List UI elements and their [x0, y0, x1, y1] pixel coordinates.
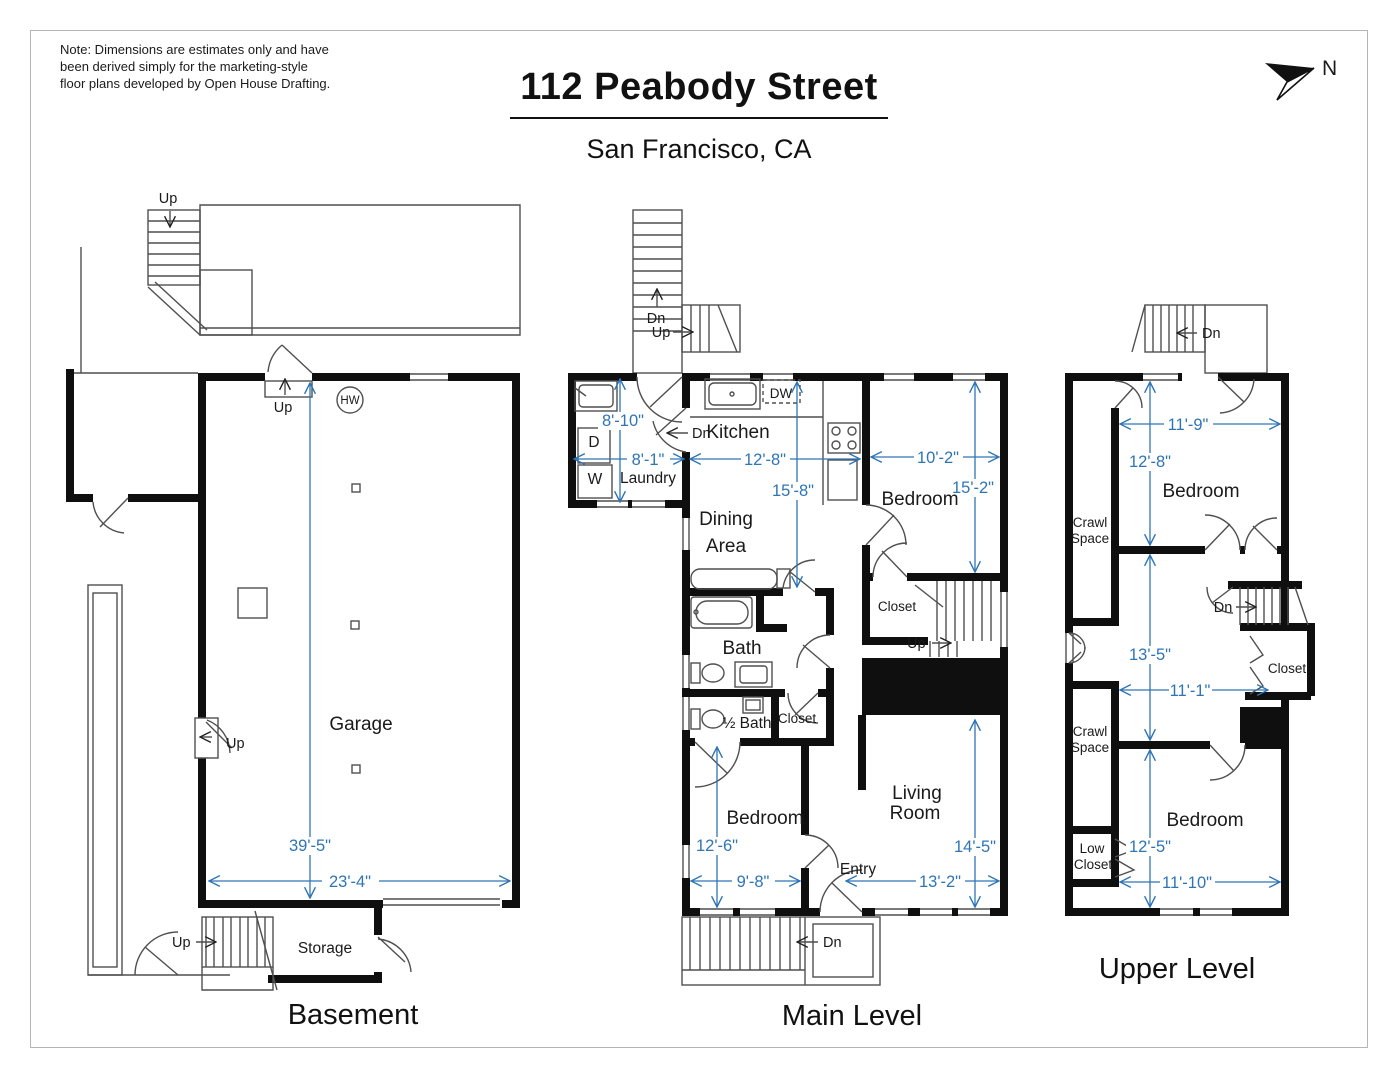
basement-walls [66, 369, 520, 983]
bedroom-top-label: Bedroom [881, 489, 958, 510]
hot-water-label: HW [340, 395, 359, 407]
main-porch: Dn [682, 917, 880, 985]
exterior-dn-label: Dn [1202, 326, 1221, 342]
dining-label-line2: Area [706, 536, 747, 557]
note-line: Note: Dimensions are estimates only and … [60, 41, 330, 58]
main-interior-stairs: Up [907, 581, 991, 657]
basement-title: Basement [233, 999, 473, 1032]
bath-label: Bath [722, 638, 761, 659]
kitchen-label: Kitchen [706, 422, 769, 443]
basement-floorplan: Up [60, 185, 540, 1035]
living-label-line2: Room [890, 803, 941, 824]
living-depth-dim: 14'-5" [954, 838, 996, 856]
deck-stairs-up-label: Up [159, 191, 178, 207]
basement-dimensions: 39'-5" 23'-4" [209, 383, 510, 898]
dryer-label: D [588, 434, 599, 451]
dining-depth-dim: 15'-8" [772, 482, 814, 500]
bedroom-top-width-dim: 11'-9" [1168, 416, 1209, 434]
basement-deck-and-stairs: Up [81, 191, 520, 373]
north-label: N [1322, 57, 1337, 80]
laundry-label: Laundry [620, 470, 676, 487]
bedroom-top-label: Bedroom [1162, 481, 1239, 502]
garage-depth-dim: 39'-5" [289, 837, 331, 855]
upper-walls [1065, 373, 1311, 916]
interior-stairs-up-label: Up [907, 636, 926, 652]
low-closet-line2: Closet [1074, 857, 1113, 872]
crawl-space-top-line2: Space [1071, 531, 1109, 546]
laundry-depth-dim: 8'-10" [602, 412, 644, 430]
page-title: 112 Peabody Street [510, 66, 888, 119]
laundry-width-dim: 8'-1" [632, 451, 665, 469]
living-width-dim: 13'-2" [919, 873, 961, 891]
dining-label-line1: Dining [699, 509, 753, 530]
closet-half-bath-label: Closet [778, 711, 817, 726]
dining-fixtures [691, 569, 790, 589]
stairs-up-label: Up [652, 325, 671, 341]
upper-interior-stairs: Dn [1207, 587, 1308, 625]
hall-width-dim: 11'-1" [1170, 682, 1211, 700]
bedroom-bottom-width-dim: 11'-10" [1162, 874, 1212, 892]
header: 112 Peabody Street [0, 66, 1398, 119]
bedroom-top-depth-dim: 12'-8" [1129, 453, 1171, 471]
bedroom-bottom-depth-dim: 12'-5" [1129, 838, 1171, 856]
storage-stairs-up-label: Up [172, 935, 191, 951]
entry-label: Entry [840, 861, 876, 878]
basement-doors-windows [93, 345, 500, 972]
main-exterior-stairs: Dn Up [633, 210, 740, 373]
kitchen-width-dim: 12'-8" [744, 451, 786, 469]
crawl-space-top-line1: Crawl [1073, 515, 1108, 530]
low-closet-line1: Low [1080, 841, 1105, 856]
main-level-title: Main Level [732, 1000, 972, 1033]
crawl-space-bottom-line2: Space [1071, 740, 1109, 755]
bedroom-bottom-label: Bedroom [726, 808, 803, 829]
garage-width-dim: 23'-4" [329, 873, 371, 891]
page-subtitle: San Francisco, CA [0, 134, 1398, 165]
closet-stairs-label: Closet [878, 599, 917, 614]
upper-exterior-stairs: Dn [1132, 305, 1267, 373]
interior-dn-label: Dn [1214, 600, 1233, 616]
washer-label: W [588, 471, 603, 488]
bedroom-top-width-dim: 10'-2" [917, 449, 959, 467]
upper-level-floorplan: Dn [1040, 295, 1340, 995]
upper-level-title: Upper Level [1057, 953, 1297, 986]
floorplan-page: Note: Dimensions are estimates only and … [0, 0, 1398, 1080]
bedroom-bottom-label: Bedroom [1166, 810, 1243, 831]
basement-storage-stairs: Up [172, 911, 277, 990]
crawl-space-bottom-line1: Crawl [1073, 724, 1108, 739]
north-arrow-icon: N [1252, 40, 1347, 115]
living-label-line1: Living [892, 783, 942, 804]
garage-label: Garage [329, 714, 392, 735]
garage-entry-up-label: Up [274, 400, 293, 416]
laundry-fixtures: D W [575, 381, 617, 498]
porch-dn-label: Dn [823, 935, 842, 951]
bedroom-bottom-depth-dim: 12'-6" [696, 837, 738, 855]
dishwasher-label: DW [770, 386, 793, 401]
half-bath-label: ½ Bath [722, 715, 771, 732]
closet-label: Closet [1268, 661, 1307, 676]
storage-label: Storage [298, 940, 352, 957]
main-level-floorplan: Dn Up [555, 195, 1025, 1040]
side-door-up-label: Up [226, 736, 245, 752]
upper-labels: Bedroom Bedroom Crawl Space Crawl Space … [1071, 481, 1307, 872]
bedroom-bottom-width-dim: 9'-8" [737, 873, 770, 891]
hall-depth-dim: 13'-5" [1129, 646, 1171, 664]
